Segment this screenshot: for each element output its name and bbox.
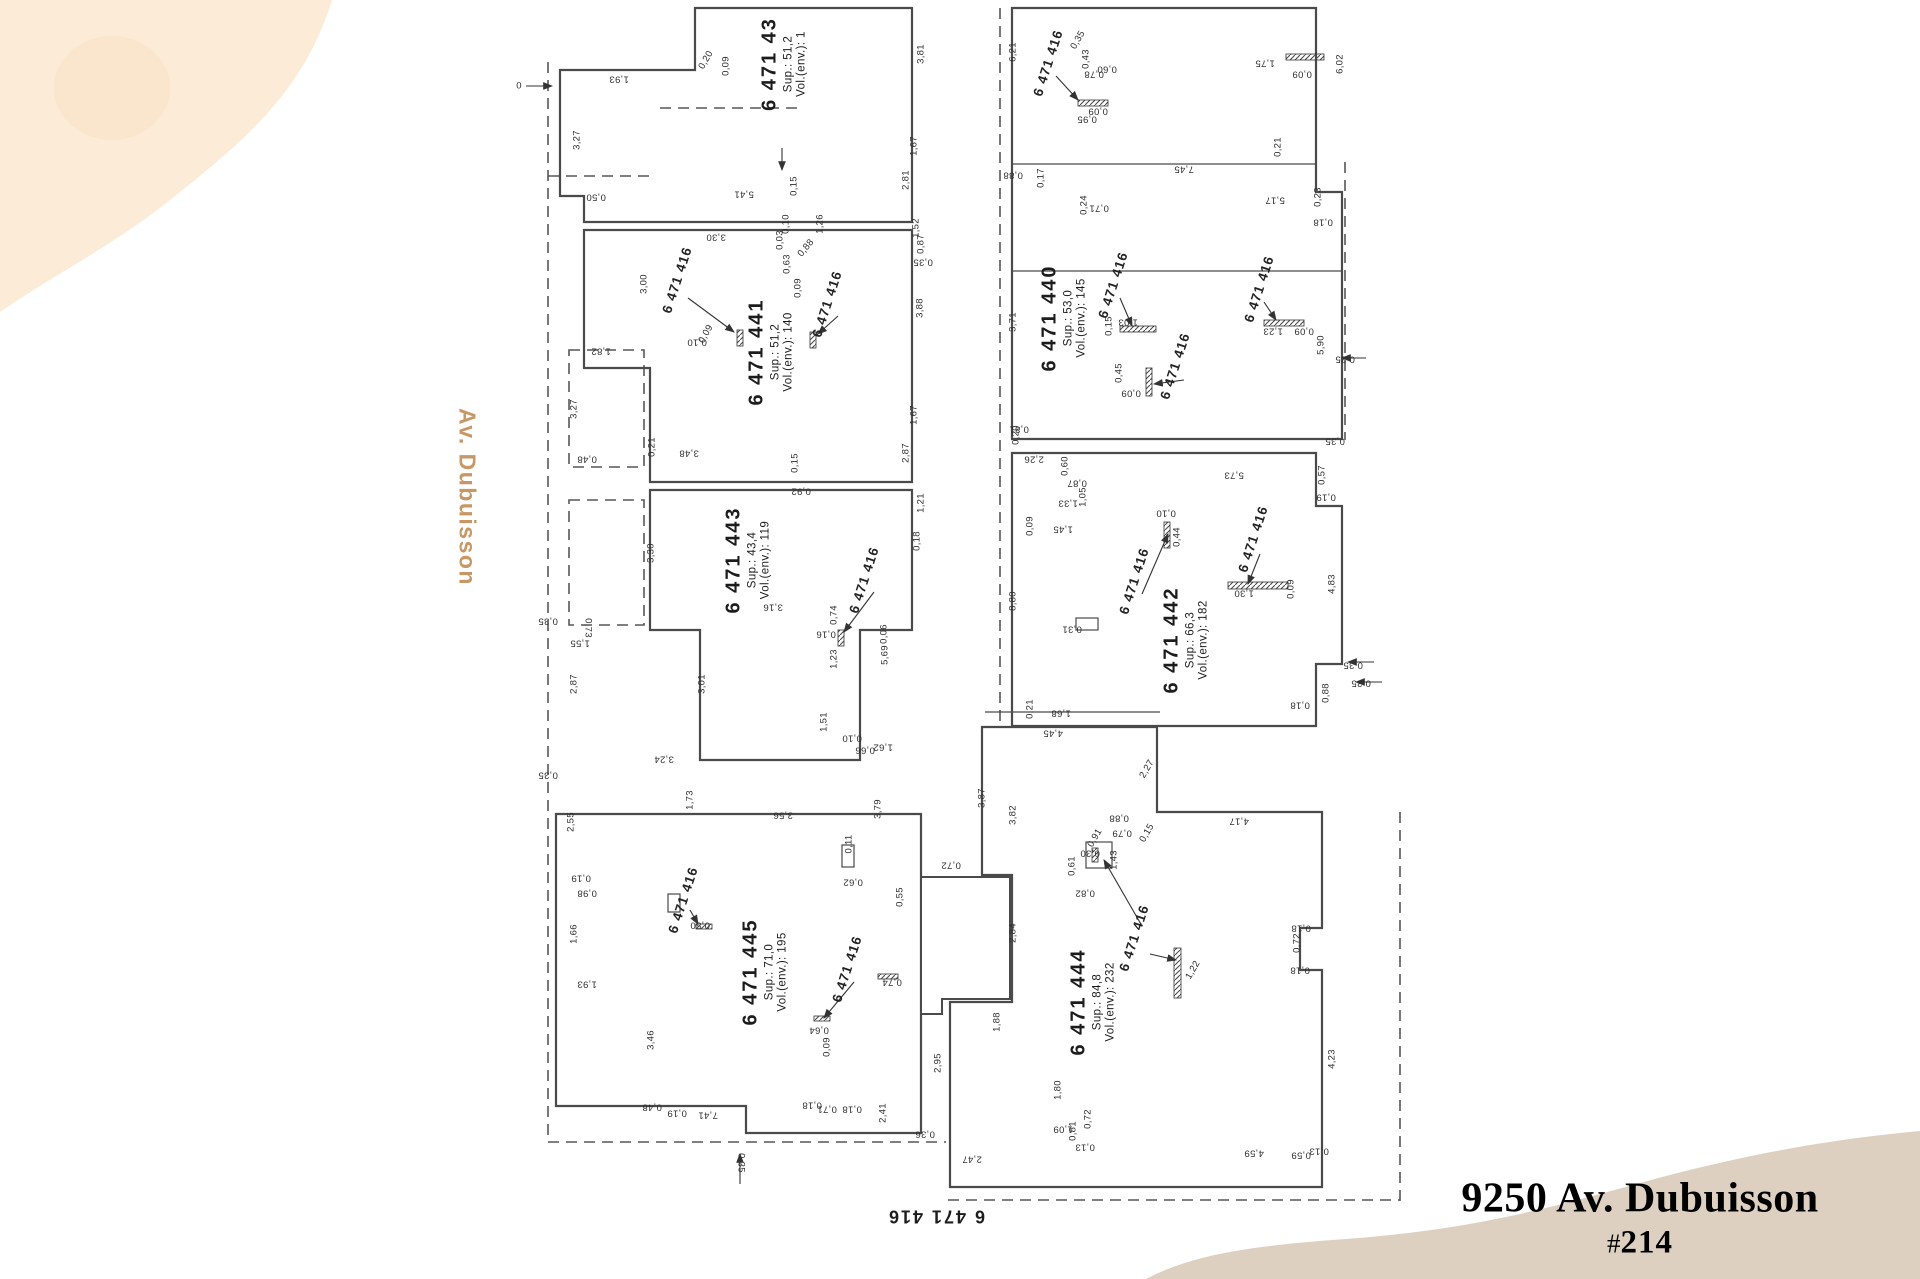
unit-number-text: 214 [1620, 1225, 1673, 1261]
top-left-blob [0, 0, 332, 312]
unit-top-left-outline [560, 8, 912, 222]
title-block: 9250 Av. Dubuisson #214 [1461, 1175, 1818, 1262]
unit-443-outline [650, 490, 912, 760]
unit-442-outline [1012, 453, 1342, 726]
corridor-notch [921, 877, 1010, 1014]
lot-boundary-dashed-lines [548, 8, 1400, 1205]
margin-arrows [526, 86, 1382, 1184]
unit-number-title: #214 [1461, 1225, 1818, 1262]
floor-plan-drawing [0, 0, 1920, 1279]
certificate-of-location-page: 01,933,270,505,410,152,811,673,810,200,0… [0, 0, 1920, 1279]
unit-441-outline [584, 230, 912, 482]
unit-top-right-outline [1012, 8, 1342, 439]
decorative-blobs [0, 0, 1920, 1279]
street-name-label: Av. Dubuisson [454, 408, 481, 586]
bottom-lot-number: 6 471 416 [887, 1206, 985, 1227]
hash-symbol: # [1607, 1229, 1621, 1259]
unit-445-outline [556, 814, 921, 1133]
address-title: 9250 Av. Dubuisson [1461, 1175, 1818, 1223]
wall-detail-boxes [668, 618, 1112, 912]
top-left-blob-inner [54, 36, 170, 140]
